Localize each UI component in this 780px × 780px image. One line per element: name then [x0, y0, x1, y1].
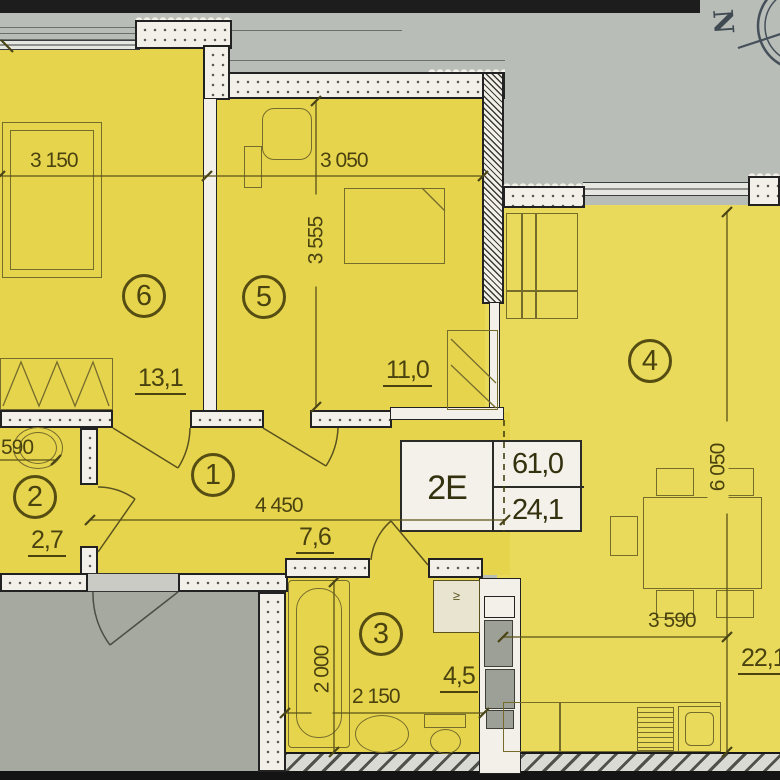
- room-circle-2: 2: [13, 475, 57, 519]
- wall-hall-top-3: [310, 410, 392, 428]
- dim-label-room5-depth: 3 555: [306, 195, 327, 287]
- compass-rose: [738, 0, 780, 72]
- wall-room4-pier-left: [503, 186, 585, 208]
- room5-wardrobe: [447, 330, 498, 410]
- dining-chair: [716, 590, 754, 618]
- duct-compartment: [484, 596, 515, 618]
- dim-label-room4-width: 3 590: [648, 610, 696, 631]
- room-circle-3: 3: [359, 612, 403, 656]
- unit-type-cell: 2E: [402, 442, 492, 534]
- room-circle-5: 5: [242, 275, 286, 319]
- room5-side-table: [244, 146, 262, 188]
- room-circle-6: 6: [122, 274, 166, 318]
- area-label-room1: 7,6: [296, 525, 334, 554]
- wall-room5-room6: [203, 98, 217, 414]
- washing-machine: ≥: [433, 580, 480, 633]
- area-label-room5: 11,0: [383, 358, 432, 387]
- room-number: 2: [27, 481, 43, 514]
- room6-window: [0, 40, 140, 50]
- unit-living-area-cell: 24,1: [494, 488, 602, 532]
- wall-room3-top-right: [428, 558, 483, 578]
- wall-hall-bottom-right: [178, 573, 288, 592]
- room5-bed: [344, 188, 445, 264]
- wall-hall-top-2: [190, 410, 264, 428]
- area-label-room3: 4,5: [440, 664, 478, 693]
- stove: [637, 707, 674, 751]
- dining-chair: [656, 468, 694, 496]
- room6-wardrobe: [0, 358, 113, 410]
- building-corridor: [0, 590, 268, 772]
- unit-living-area: 24,1: [512, 494, 562, 527]
- wardrobe-line: [535, 214, 537, 318]
- room-number: 4: [642, 345, 658, 378]
- room-circle-4: 4: [628, 339, 672, 383]
- wall-hall-top-1: [0, 410, 113, 428]
- wall-room2-right-upper: [80, 428, 98, 485]
- dining-table: [643, 497, 762, 589]
- dim-label-room4-depth: 6 050: [708, 422, 729, 514]
- area-label-room4: 22,1: [738, 646, 780, 675]
- wardrobe-line: [521, 214, 523, 318]
- room5-armchair: [262, 108, 312, 160]
- dim-label-room3-width: 2 150: [352, 686, 400, 707]
- dim-label-room5-width: 3 050: [320, 150, 368, 171]
- room4-wardrobe: [506, 213, 578, 319]
- lower-wall-hatch-band: [268, 752, 780, 772]
- room-circle-1: 1: [191, 453, 235, 497]
- area-label-room2: 2,7: [28, 528, 66, 557]
- duct-box-1: [484, 620, 513, 667]
- top-dark-strip: [0, 0, 700, 13]
- bottom-dark-strip: [0, 771, 780, 780]
- compass-north-letter: N: [699, 3, 737, 41]
- dim-label-hall-width: 4 450: [255, 495, 303, 516]
- floor-plan: ≥ 2E 61,0 24,1: [0, 0, 780, 780]
- area-label-room6: 13,1: [135, 366, 186, 395]
- wall-hall-bottom-left: [0, 573, 88, 592]
- kitchen-sink-basin: [685, 712, 714, 746]
- dim-label-room3-depth: 2 000: [312, 624, 333, 716]
- dining-chair: [610, 516, 638, 556]
- wardrobe-line: [507, 290, 577, 292]
- room-number: 5: [256, 281, 272, 314]
- room-number: 1: [205, 459, 221, 492]
- counter-divider: [559, 703, 561, 751]
- wall-room5-top: [228, 72, 505, 99]
- room-number: 6: [136, 280, 152, 313]
- wall-corridor-right: [258, 592, 286, 772]
- toilet-bowl: [430, 729, 461, 754]
- wall-room3-top-left: [285, 558, 370, 578]
- dim-label-room2-width: 590: [1, 437, 33, 458]
- wall-room4-pier-right: [748, 176, 780, 206]
- bathroom-sink: [355, 715, 409, 753]
- wall-room2-right-lower: [80, 546, 98, 575]
- entrance-threshold: [88, 573, 178, 592]
- dim-label-room6-width: 3 150: [30, 150, 78, 171]
- wall-hatched-pier: [482, 72, 504, 304]
- room-number: 3: [373, 618, 389, 651]
- washing-machine-symbol: ≥: [453, 588, 460, 632]
- unit-type-label: 2E: [427, 469, 467, 508]
- unit-info-box: 2E 61,0 24,1: [400, 440, 582, 532]
- wall-top-step-b: [203, 45, 230, 100]
- unit-total-area-cell: 61,0: [494, 442, 602, 486]
- toilet-tank: [424, 714, 466, 728]
- unit-total-area: 61,0: [512, 448, 562, 481]
- room4-window: [583, 182, 750, 196]
